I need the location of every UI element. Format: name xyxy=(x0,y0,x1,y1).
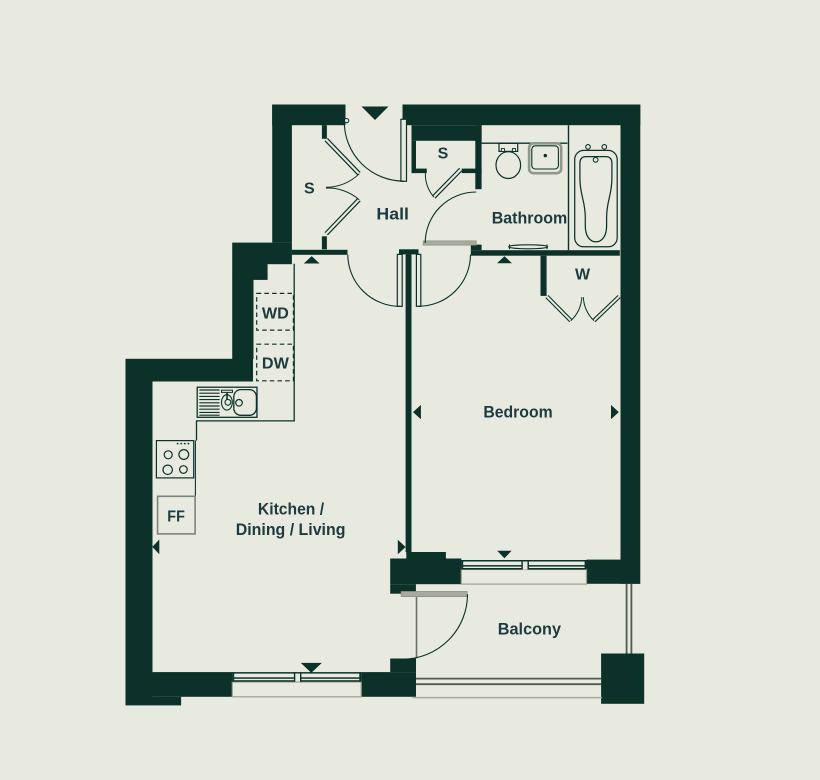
svg-text:W: W xyxy=(575,267,591,284)
svg-text:DW: DW xyxy=(262,356,290,373)
svg-text:Dining / Living: Dining / Living xyxy=(236,520,346,539)
svg-text:FF: FF xyxy=(167,508,185,525)
svg-text:WD: WD xyxy=(262,306,289,323)
svg-text:Bathroom: Bathroom xyxy=(492,209,568,228)
svg-text:Hall: Hall xyxy=(376,204,409,223)
svg-text:S: S xyxy=(304,180,315,197)
svg-text:Kitchen /: Kitchen / xyxy=(258,500,324,519)
svg-text:S: S xyxy=(438,146,449,163)
svg-text:Bedroom: Bedroom xyxy=(483,403,552,422)
svg-text:Balcony: Balcony xyxy=(498,619,562,638)
